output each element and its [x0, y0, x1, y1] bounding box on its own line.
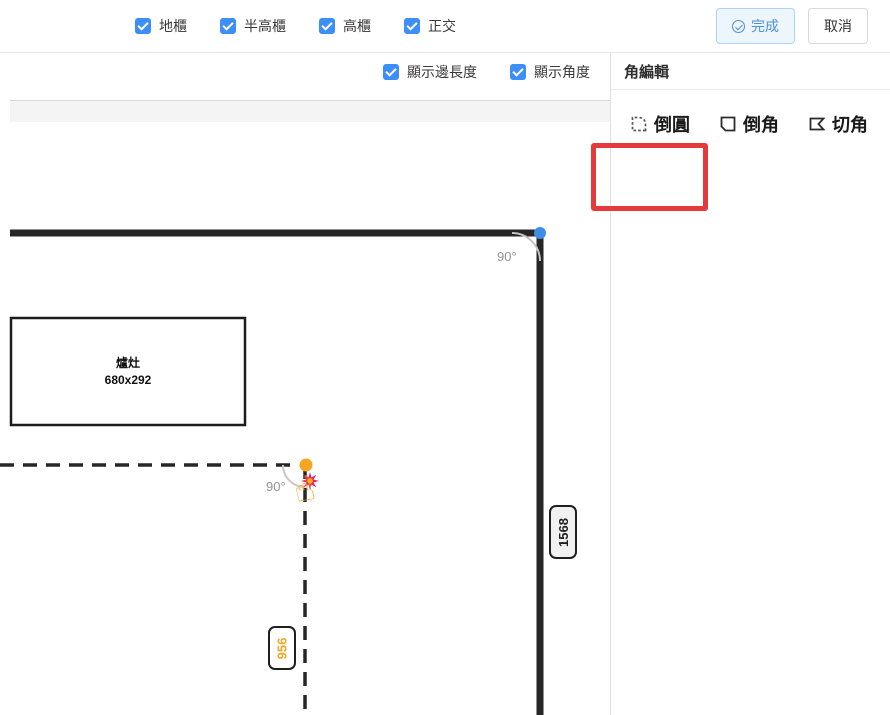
angle-label-mid: 90°	[266, 479, 286, 494]
filter-label: 地櫃	[159, 16, 187, 36]
option-cut-corner[interactable]: 切角	[808, 111, 868, 137]
cancel-button[interactable]: 取消	[808, 8, 868, 44]
vertex-handle-orange[interactable]	[300, 459, 313, 472]
corner-edit-options: 倒圓 倒角 切角	[611, 90, 890, 137]
top-toolbar: 地櫃 半高櫃 高櫃 正交 完成 取消	[0, 0, 890, 53]
checkbox-checked-icon[interactable]	[220, 18, 236, 34]
checkbox-checked-icon[interactable]	[319, 18, 335, 34]
main-area: 顯示邊長度 顯示角度	[0, 53, 890, 715]
dimension-label-right[interactable]: 1568	[549, 505, 577, 559]
option-label: 倒角	[743, 111, 779, 137]
fillet-icon	[630, 115, 648, 133]
cut-corner-icon	[808, 115, 826, 133]
filter-checkbox-orthogonal[interactable]: 正交	[404, 16, 456, 36]
chamfer-icon	[719, 115, 737, 133]
checkbox-checked-icon[interactable]	[404, 18, 420, 34]
filter-label: 半高櫃	[244, 16, 286, 36]
click-burst-icon	[301, 472, 319, 490]
filter-label: 正交	[428, 16, 456, 36]
corner-edit-panel: 角編輯 倒圓 倒角 切角	[610, 53, 890, 715]
filter-checkbox-half-height-cabinet[interactable]: 半高櫃	[220, 16, 286, 36]
checkbox-checked-icon[interactable]	[135, 18, 151, 34]
vertex-handle-blue[interactable]	[534, 227, 546, 239]
stove-size: 680x292	[105, 372, 152, 388]
stove-name: 爐灶	[116, 355, 140, 371]
filter-checkbox-floor-cabinet[interactable]: 地櫃	[135, 16, 187, 36]
angle-label-top: 90°	[497, 249, 517, 264]
cancel-button-label: 取消	[824, 16, 852, 36]
done-button-label: 完成	[751, 16, 779, 36]
floorplan-canvas[interactable]: 顯示邊長度 顯示角度	[0, 53, 610, 715]
option-label: 切角	[832, 111, 868, 137]
panel-title: 角編輯	[611, 53, 890, 90]
dimension-label-bottom[interactable]: 956	[268, 626, 296, 670]
filter-checkbox-tall-cabinet[interactable]: 高櫃	[319, 16, 371, 36]
done-button[interactable]: 完成	[716, 8, 795, 44]
check-circle-icon	[732, 20, 745, 33]
option-fillet[interactable]: 倒圓	[630, 111, 690, 137]
filter-label: 高櫃	[343, 16, 371, 36]
option-chamfer[interactable]: 倒角	[719, 111, 779, 137]
option-label: 倒圓	[654, 111, 690, 137]
stove-label: 爐灶 680x292	[11, 318, 245, 425]
